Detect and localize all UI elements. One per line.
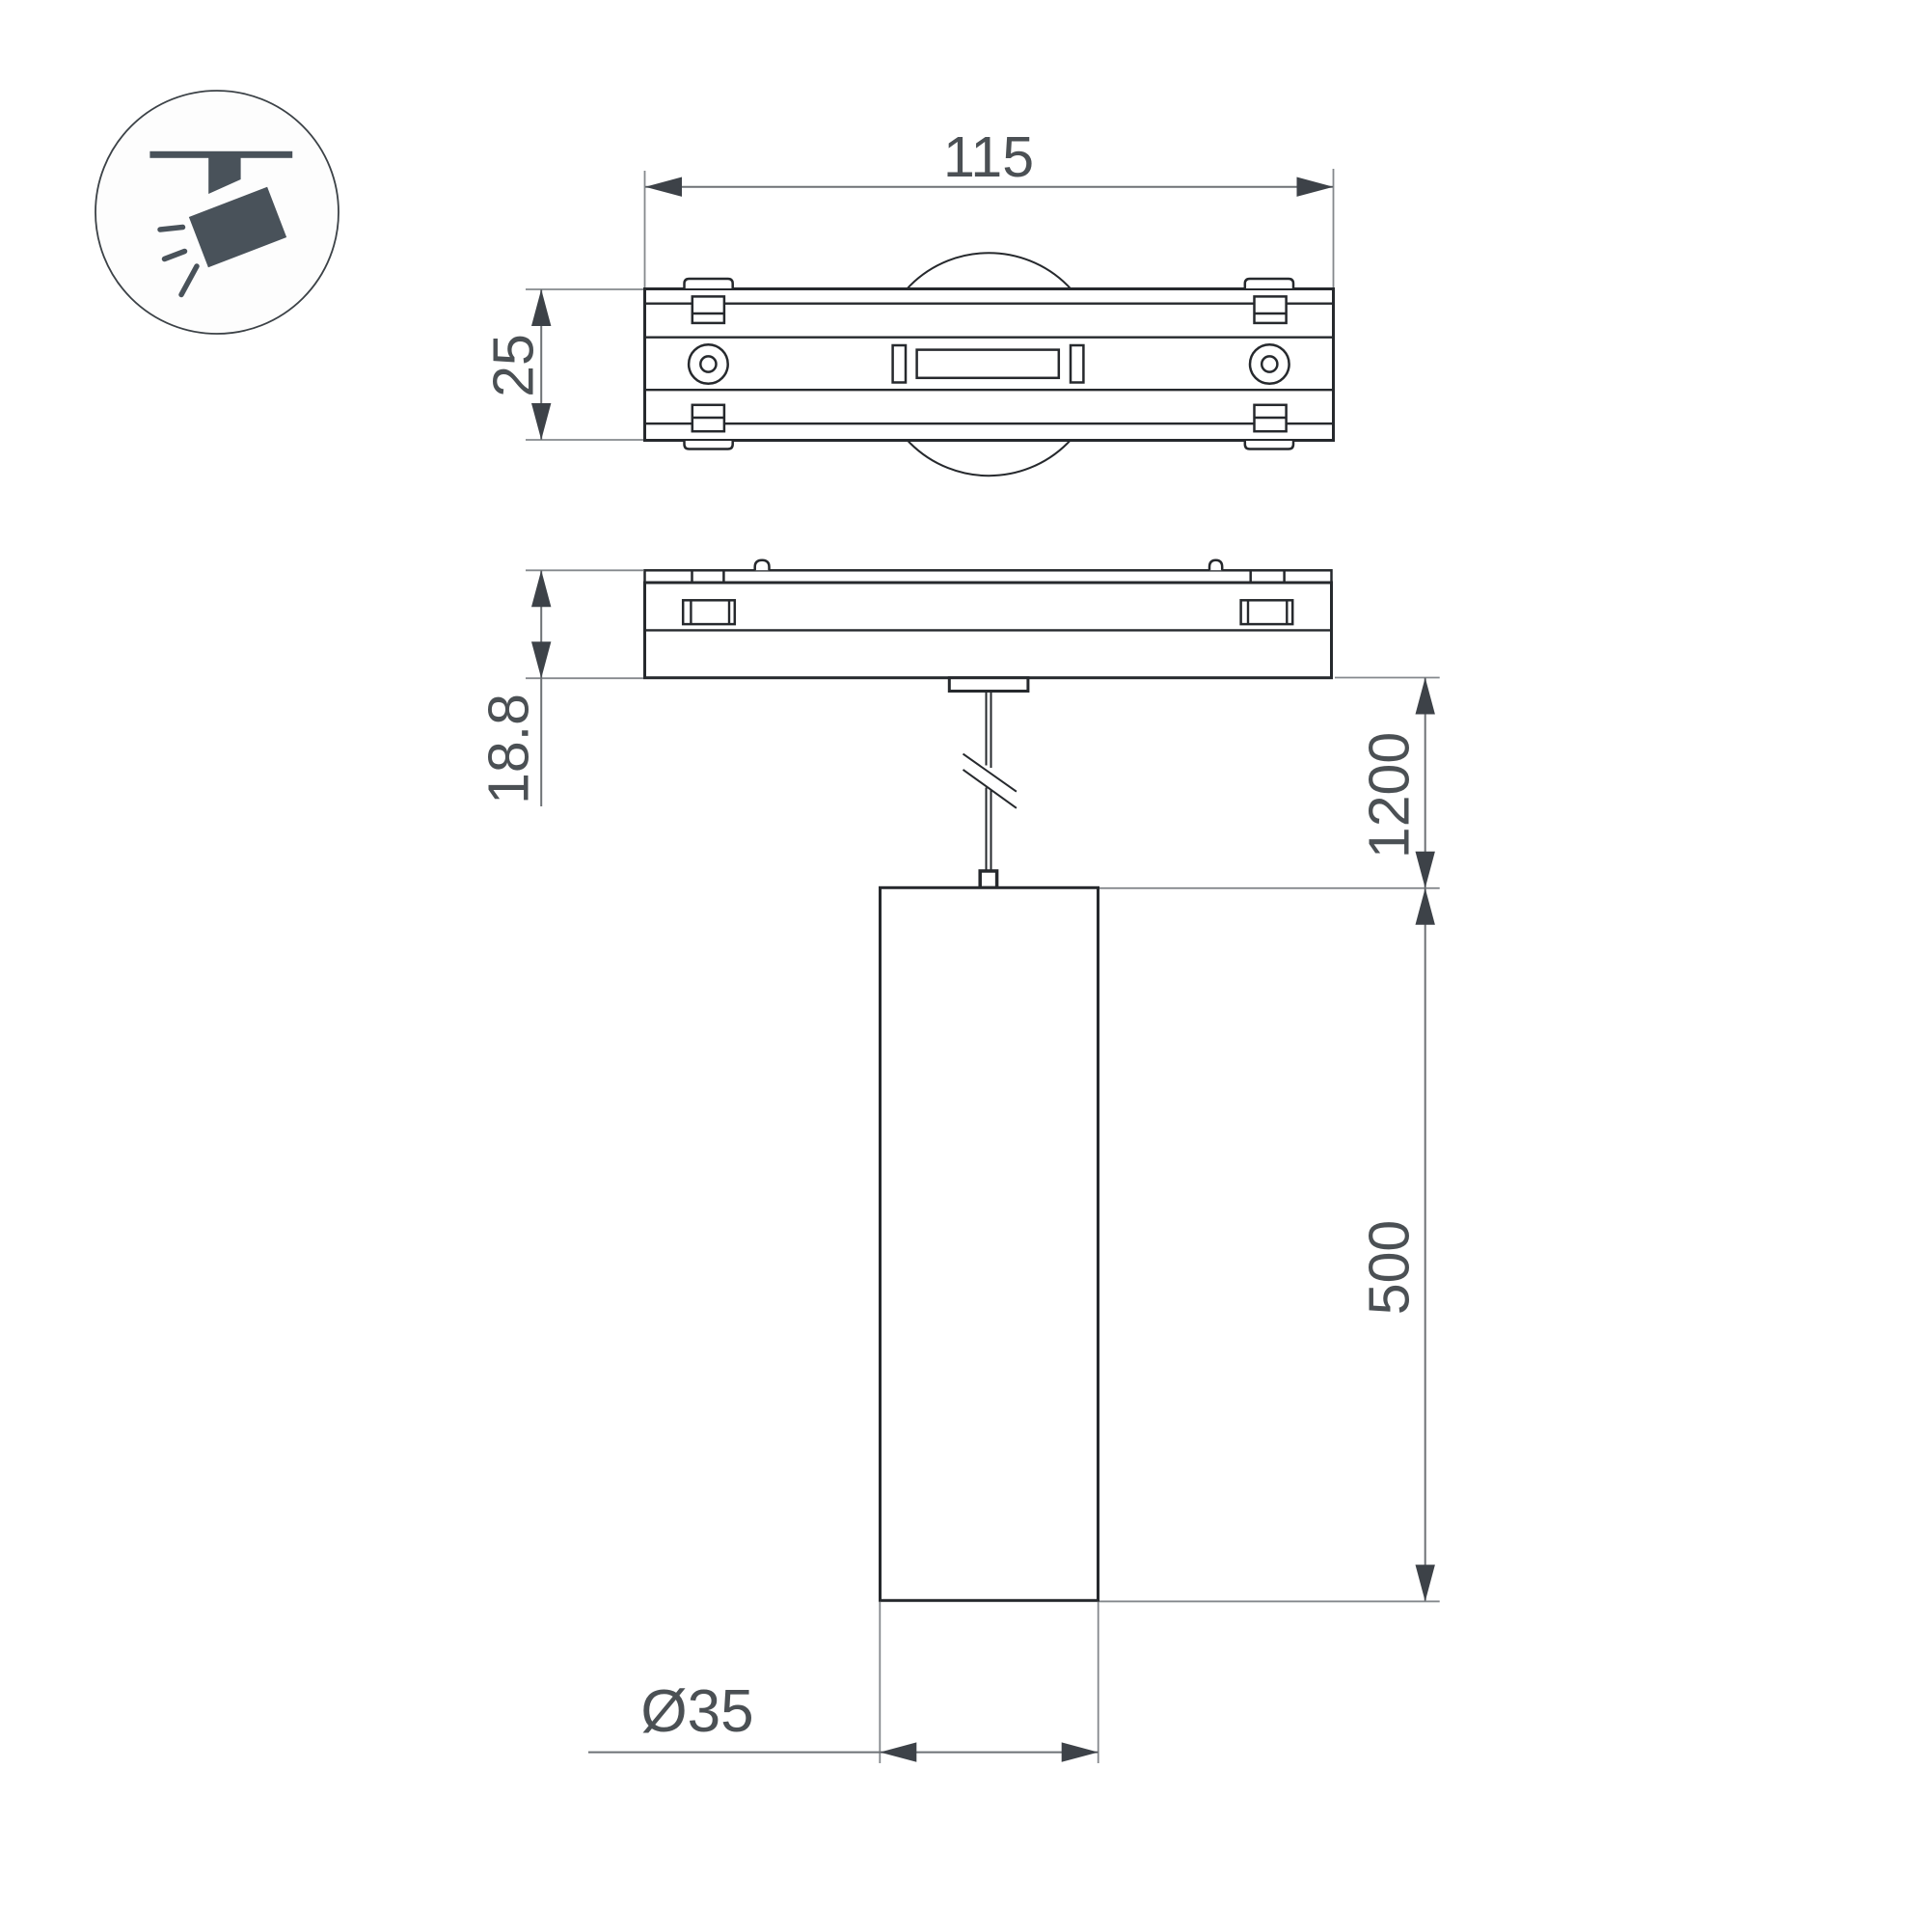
svg-text:500: 500 [1358, 1220, 1422, 1315]
svg-text:115: 115 [943, 125, 1034, 189]
svg-text:25: 25 [482, 334, 546, 397]
svg-text:18.8: 18.8 [477, 694, 541, 804]
svg-text:Ø35: Ø35 [640, 1678, 753, 1745]
svg-text:1200: 1200 [1358, 732, 1422, 858]
